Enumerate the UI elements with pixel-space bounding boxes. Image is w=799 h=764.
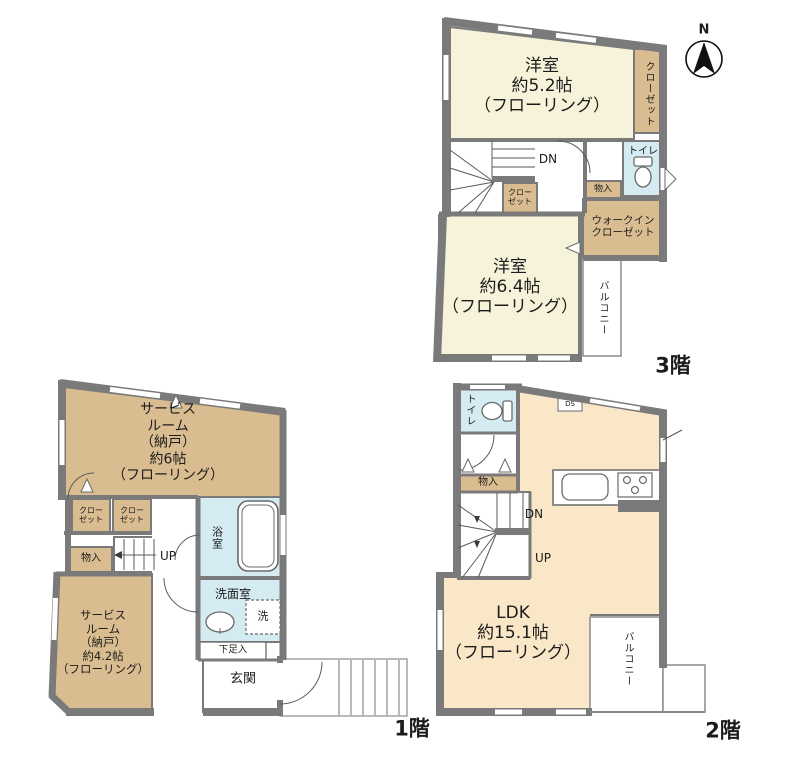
compass-icon [686, 41, 722, 77]
label-toilet-2f: トイレ [464, 394, 474, 427]
label-service-room-4-2: サービス ルーム （納戸） 約4.2帖 （フローリング） [57, 609, 149, 677]
label-shoe-storage: 下足入 [219, 644, 248, 655]
label-stairs-up-2f: UP [535, 551, 551, 565]
stove-icon [618, 473, 652, 497]
label-storage-1f: 物入 [81, 553, 101, 565]
entry-steps [280, 659, 407, 716]
label-storage-2f: 物入 [478, 477, 498, 489]
label-service-room-6: サービス ルーム （納戸） 約6帖 （フローリング） [112, 402, 224, 485]
label-washroom: 洗面室 [215, 587, 251, 601]
kitchen-sink-icon [562, 474, 608, 500]
label-entrance: 玄関 [230, 671, 256, 686]
label-duct-space: DS [565, 400, 575, 408]
label-closet-3f: クローゼット [643, 61, 653, 127]
toilet-icon-3f [634, 157, 652, 187]
label-walkin-closet: ウォークイン クローゼット [592, 215, 655, 240]
door-marker [665, 168, 676, 190]
floorplan-page: N 洋室 約5.2帖 （フローリング） クローゼット DN クロー ゼット 物入… [0, 0, 799, 764]
label-balcony-2f: バルコニー [622, 632, 632, 687]
label-ldk: LDK 約15.1帖 （フローリング） [445, 603, 581, 663]
balcony-2f [590, 617, 705, 712]
label-stairs-dn-2f: DN [525, 507, 543, 521]
label-closet-b: クロー ゼット [120, 507, 144, 525]
floor1-name: 1階 [394, 717, 430, 742]
label-toilet-3f: トイレ [628, 146, 658, 158]
floor3-name: 3階 [655, 354, 691, 379]
label-stairs-dn-3f: DN [539, 152, 557, 166]
label-closet-a: クロー ゼット [79, 507, 103, 525]
label-closet-small-3f: クロー ゼット [508, 189, 532, 207]
label-bedroom-5-2: 洋室 約5.2帖 （フローリング） [474, 56, 610, 116]
label-balcony-3f: バルコニー [597, 281, 607, 336]
floor2-plan [436, 383, 705, 714]
label-storage-3f: 物入 [594, 185, 612, 196]
label-bedroom-6-4: 洋室 約6.4帖 （フローリング） [442, 257, 578, 317]
label-washer: 洗 [258, 611, 269, 624]
floor2-name: 2階 [705, 719, 741, 744]
toilet-icon-2f [482, 401, 512, 421]
kitchen-counter [553, 470, 663, 512]
compass-north-label: N [699, 22, 710, 37]
label-stairs-up-1f: UP [160, 549, 176, 563]
bathtub-icon [238, 501, 278, 571]
label-bathroom: 浴室 [212, 526, 223, 550]
